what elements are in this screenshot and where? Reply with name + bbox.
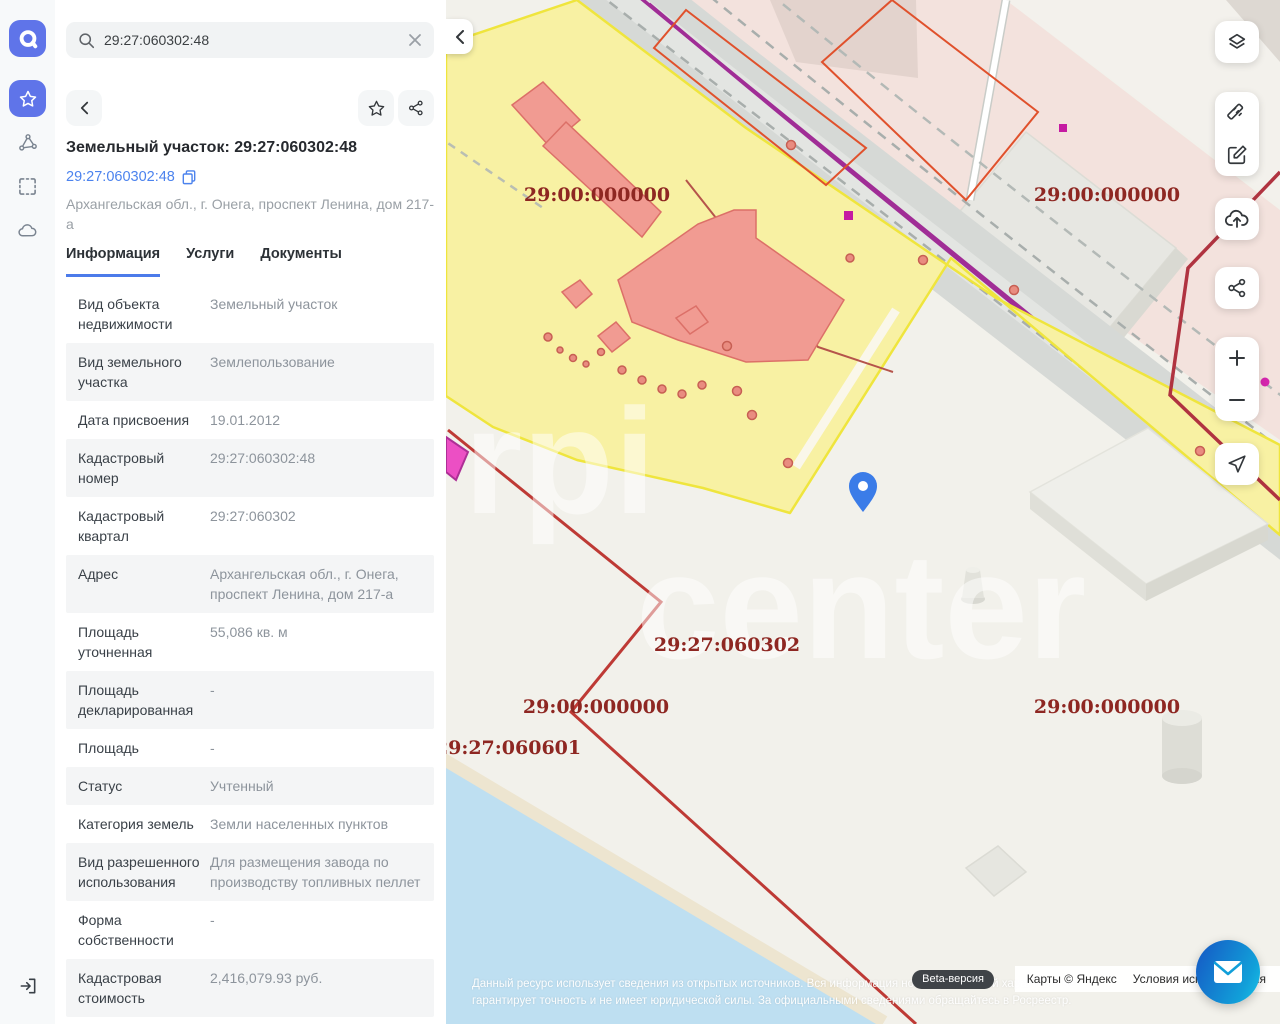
ruler-icon[interactable] — [1215, 92, 1259, 134]
sidebar-item-favorites[interactable] — [9, 80, 46, 117]
layers-control[interactable] — [1215, 21, 1259, 63]
cadastral-label: 29:00:000000 — [1034, 184, 1180, 206]
table-row: Категория земельЗемли населенных пунктов — [66, 805, 434, 843]
table-row: Кадастровая стоимость2,416,079.93 руб. — [66, 959, 434, 1017]
sidebar-item-select-area[interactable] — [9, 168, 46, 205]
share-button[interactable] — [398, 90, 434, 126]
table-row: Кадастровый квартал29:27:060302 — [66, 497, 434, 555]
table-row: СтатусУчтенный — [66, 767, 434, 805]
sidebar-item-cloud[interactable] — [9, 212, 46, 249]
logo-a-icon — [17, 28, 39, 50]
sign-in-icon — [18, 976, 38, 996]
share-icon[interactable] — [1215, 267, 1259, 309]
sidebar-item-objects[interactable] — [9, 124, 46, 161]
search-input[interactable] — [104, 32, 399, 48]
back-button[interactable] — [66, 90, 102, 126]
table-row: Вид земельного участкаЗемлепользование — [66, 343, 434, 401]
cadastral-label: 29:27:060302 — [654, 634, 800, 656]
tab-services[interactable]: Услуги — [186, 246, 234, 277]
info-table: Вид объекта недвижимостиЗемельный участо… — [66, 285, 434, 1017]
tab-information[interactable]: Информация — [66, 246, 160, 277]
cadastral-label: 29:00:000000 — [523, 696, 669, 718]
upload-control[interactable] — [1215, 198, 1259, 240]
cloud-icon — [17, 220, 38, 241]
chevron-left-icon — [80, 101, 89, 115]
map-canvas[interactable]: rpi center 29:00:000000 29:00:000000 29:… — [446, 0, 1280, 1024]
share-icon — [407, 99, 425, 117]
favorite-button[interactable] — [358, 90, 394, 126]
sidebar — [0, 0, 55, 1024]
star-icon — [18, 89, 38, 109]
object-address: Архангельская обл., г. Онега, проспект Л… — [66, 194, 434, 234]
tab-documents[interactable]: Документы — [260, 246, 342, 277]
object-header — [66, 90, 434, 126]
star-icon — [367, 99, 386, 118]
cadastral-link-row: 29:27:060302:48 — [66, 169, 196, 185]
page-title: Земельный участок: 29:27:060302:48 — [66, 139, 434, 157]
table-row: Дата присвоения19.01.2012 — [66, 401, 434, 439]
cadastral-number-link[interactable]: 29:27:060302:48 — [66, 169, 175, 185]
zoom-out-button[interactable] — [1215, 379, 1259, 421]
map-graphics — [446, 0, 1280, 1024]
upload-cloud-icon[interactable] — [1215, 198, 1259, 240]
table-row: Вид разрешенного использованияДля размещ… — [66, 843, 434, 901]
table-row: Площадь- — [66, 729, 434, 767]
envelope-icon — [1213, 960, 1243, 984]
table-row: Площадь уточненная55,086 кв. м — [66, 613, 434, 671]
cadastral-label: 29:00:000000 — [1034, 696, 1180, 718]
beta-badge: Beta-версия — [912, 970, 994, 989]
locate-icon[interactable] — [1215, 443, 1259, 485]
share-map-control[interactable] — [1215, 267, 1259, 309]
sign-in-button[interactable] — [14, 972, 42, 1000]
select-area-icon — [18, 177, 37, 196]
measure-edit-control[interactable] — [1215, 92, 1259, 176]
app-logo[interactable] — [9, 20, 46, 57]
table-row: АдресАрхангельская обл., г. Онега, просп… — [66, 555, 434, 613]
table-row: Кадастровый номер29:27:060302:48 — [66, 439, 434, 497]
yandex-copyright: Карты © Яндекс — [1027, 972, 1117, 986]
table-row: Вид объекта недвижимостиЗемельный участо… — [66, 285, 434, 343]
chevron-left-icon — [455, 30, 465, 44]
cadastral-label: 29:00:000000 — [524, 184, 670, 206]
search-icon — [78, 32, 95, 49]
table-row: Площадь декларированная- — [66, 671, 434, 729]
zoom-in-button[interactable] — [1215, 337, 1259, 379]
polygon-nodes-icon — [18, 133, 38, 153]
clear-search-icon[interactable] — [408, 33, 422, 47]
locate-control[interactable] — [1215, 443, 1259, 485]
zoom-control[interactable] — [1215, 337, 1259, 421]
layers-icon[interactable] — [1215, 21, 1259, 63]
table-row: Форма собственности- — [66, 901, 434, 959]
chat-button[interactable] — [1196, 940, 1260, 1004]
tab-bar: Информация Услуги Документы — [66, 246, 342, 277]
copy-icon[interactable] — [182, 170, 196, 185]
edit-icon[interactable] — [1215, 134, 1259, 176]
cadastral-label: 29:27:060601 — [446, 737, 581, 759]
search-bar[interactable] — [66, 22, 434, 58]
panel-collapse-button[interactable] — [446, 19, 473, 54]
detail-panel: Земельный участок: 29:27:060302:48 29:27… — [55, 0, 446, 1024]
